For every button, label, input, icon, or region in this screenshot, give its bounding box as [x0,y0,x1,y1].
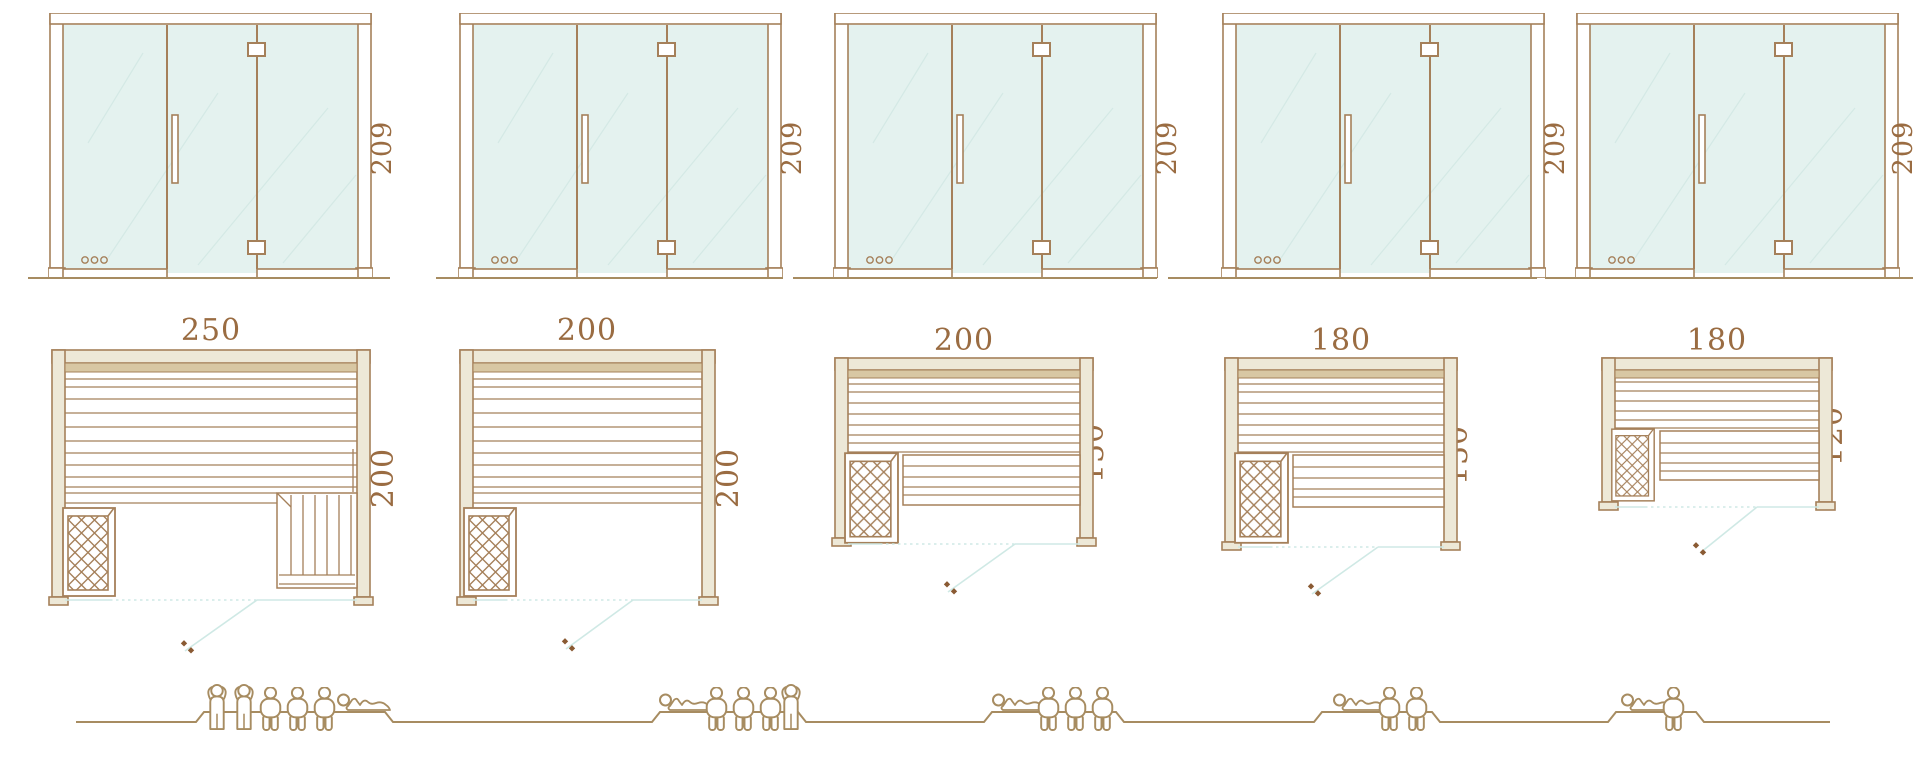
lower-bench [1660,431,1819,480]
bench-boards [848,384,1080,452]
heater-icon [1235,453,1288,543]
person-lying-icon [1334,695,1386,711]
depth-dimension: 200 [711,448,746,508]
glass-front-and-door [65,600,357,651]
person-lying-icon [660,695,712,711]
door-handle-icon [944,581,957,594]
person-sitting-icon [1066,687,1086,730]
person-standing-icon [782,685,799,729]
door-elevation-4: 209 [1221,13,1571,278]
bench-boards [65,379,357,503]
back-wall-board [473,363,702,372]
glass-front-and-door [1615,507,1819,553]
person-sitting-icon [707,687,727,730]
back-wall-board [848,370,1080,378]
width-dimension: 200 [557,313,617,348]
glass-front-and-door [1238,547,1444,594]
heater-icon [1612,429,1654,501]
capacity-group-5 [660,685,800,730]
bench-boards [1238,384,1444,452]
glass-door-wall-icon [1221,13,1546,278]
floor-plan-180x120: 180 120 [1599,323,1850,556]
glass-front-and-door [848,544,1080,592]
floor-plan-200x200: 200 200 [457,313,746,652]
plan-row: 250 200 [49,313,1850,654]
height-dimension: 209 [367,121,398,176]
height-dimension: 209 [1540,121,1571,176]
sauna-size-diagram: 209 209 209 209 209 250 2 [0,0,1920,764]
diagram-svg: 209 209 209 209 209 250 2 [0,0,1920,764]
door-elevation-2: 209 [458,13,808,278]
bench-boards [1615,382,1819,428]
person-sitting-icon [1093,687,1113,730]
person-sitting-icon [734,687,754,730]
glass-door-wall-icon [458,13,783,278]
glass-door-wall-icon [48,13,373,278]
height-dimension: 209 [1152,121,1183,176]
bench-profile-line [76,712,1830,722]
width-dimension: 200 [934,323,994,358]
person-sitting-icon [261,687,281,730]
elevation-row: 209 209 209 209 209 [28,13,1919,278]
capacity-group-3 [1334,687,1426,730]
person-sitting-icon [761,687,781,730]
floor-plan-250x200: 250 200 [49,313,401,654]
door-elevation-5: 209 [1575,13,1919,278]
lower-bench [903,455,1080,505]
bench-boards [473,379,702,503]
heater-icon [845,453,898,543]
door-elevation-3: 209 [833,13,1183,278]
person-sitting-icon [1380,687,1400,730]
back-wall-board [1238,370,1444,378]
door-handle-icon [562,638,575,651]
capacity-row [76,685,1830,730]
person-lying-icon [993,695,1045,711]
height-dimension: 209 [1888,121,1919,176]
back-wall-board [65,363,357,372]
heater-icon [63,508,115,596]
person-sitting-icon [1407,687,1427,730]
floor-plan-200x150: 200 150 [832,323,1111,595]
heater-icon [464,508,516,596]
person-lying-icon [338,695,390,711]
capacity-group-4 [993,687,1112,730]
door-elevation-1: 209 [48,13,398,278]
person-standing-icon [208,685,225,729]
glass-door-wall-icon [833,13,1158,278]
height-dimension: 209 [777,121,808,176]
lower-bench [1293,455,1444,507]
person-sitting-icon [1039,687,1059,730]
capacity-group-2 [1622,687,1683,730]
side-bench [277,493,357,588]
capacity-group-6 [208,685,390,730]
width-dimension: 250 [181,313,241,348]
person-sitting-icon [1664,687,1684,730]
glass-front-and-door [473,600,702,649]
width-dimension: 180 [1687,323,1747,358]
width-dimension: 180 [1311,323,1371,358]
back-wall-board [1615,370,1819,378]
person-sitting-icon [288,687,308,730]
person-standing-icon [235,685,252,729]
depth-dimension: 200 [366,448,401,508]
glass-door-wall-icon [1575,13,1900,278]
floor-plan-180x150: 180 150 [1222,323,1475,597]
person-sitting-icon [315,687,335,730]
